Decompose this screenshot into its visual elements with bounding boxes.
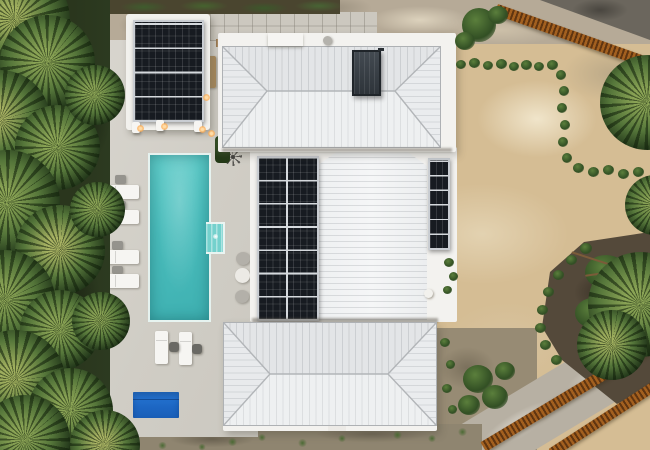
shrub	[553, 270, 564, 280]
dark-side-table	[192, 344, 202, 354]
side-table	[112, 241, 123, 250]
shrub	[566, 255, 577, 265]
grass-tuft	[228, 438, 237, 446]
shrub	[537, 305, 548, 315]
shrub	[560, 120, 570, 130]
se-bush	[495, 362, 515, 380]
warm-light	[137, 125, 144, 132]
north-bush	[488, 6, 508, 24]
north-shrub-strip	[104, 0, 340, 14]
palm-tree	[72, 292, 130, 350]
central-solar-array-left	[257, 156, 319, 321]
aerial-photo-scene	[0, 0, 650, 450]
shrub	[449, 272, 458, 281]
shrub	[442, 384, 452, 393]
shrub	[618, 169, 629, 179]
shrub	[551, 355, 562, 365]
shrub	[448, 405, 457, 414]
shrub	[558, 137, 568, 147]
warm-light	[199, 126, 206, 133]
shrub	[534, 62, 544, 71]
palm-tree	[577, 310, 647, 380]
palm-tree	[65, 65, 125, 125]
shrub	[443, 286, 452, 294]
shrub	[559, 86, 569, 96]
shrub	[535, 323, 546, 333]
palm-tree	[70, 182, 125, 237]
grass-tuft	[198, 444, 206, 450]
carport-solar-array	[133, 20, 204, 122]
rear-house	[223, 322, 437, 431]
main-house-roof	[222, 46, 441, 148]
shrub	[580, 243, 592, 254]
shrub	[483, 61, 493, 70]
shrub	[540, 340, 551, 350]
grass-tuft	[458, 428, 467, 436]
grass-tuft	[298, 439, 307, 447]
pouf	[235, 290, 249, 303]
shrub	[547, 60, 558, 70]
blue-trampoline-mat	[133, 392, 179, 418]
pouf	[236, 252, 250, 265]
main-roof-hip-lines	[222, 46, 441, 148]
pool-light	[213, 234, 218, 239]
sun-lounger	[105, 274, 139, 288]
grass-tuft	[338, 435, 346, 442]
shrub	[446, 360, 455, 369]
shrub	[440, 338, 450, 347]
roof-vent-circle	[323, 36, 332, 45]
shrub	[456, 60, 466, 69]
shrub	[543, 287, 554, 297]
rear-roof-hip-lines	[223, 322, 437, 426]
central-ribbed-roof	[317, 150, 427, 320]
rear-step	[328, 426, 346, 431]
swimming-pool	[148, 153, 211, 322]
shrub	[556, 70, 566, 80]
central-solar-array-right	[428, 158, 450, 250]
warm-light	[203, 94, 210, 101]
shrub	[521, 60, 532, 70]
shrub	[573, 163, 584, 173]
eave-shadow	[222, 148, 452, 152]
shrub	[588, 167, 599, 177]
shrub	[509, 62, 519, 71]
pouf	[235, 268, 250, 283]
solar-water-heater	[352, 50, 381, 96]
grass-tuft	[158, 442, 167, 449]
shrub	[633, 167, 644, 177]
sun-lounger-south	[179, 332, 192, 365]
shrub	[469, 58, 480, 68]
sun-lounger	[105, 250, 139, 264]
shrub	[603, 165, 614, 175]
grass-tuft	[428, 435, 436, 442]
shrub	[562, 153, 572, 163]
shrub	[496, 59, 507, 69]
sun-lounger-south	[155, 331, 168, 364]
round-white-table	[424, 289, 433, 298]
warm-light	[208, 130, 215, 137]
shrub	[557, 103, 567, 113]
north-bush	[455, 32, 475, 50]
side-table	[115, 175, 126, 184]
grass-tuft	[393, 431, 402, 439]
se-bush	[458, 395, 480, 415]
side-table	[112, 266, 123, 274]
dark-side-table	[169, 342, 179, 352]
warm-light	[161, 123, 168, 130]
shrub	[444, 258, 454, 267]
se-bush	[482, 385, 508, 409]
grass-tuft	[258, 434, 266, 441]
roof-vent-box	[268, 33, 303, 46]
